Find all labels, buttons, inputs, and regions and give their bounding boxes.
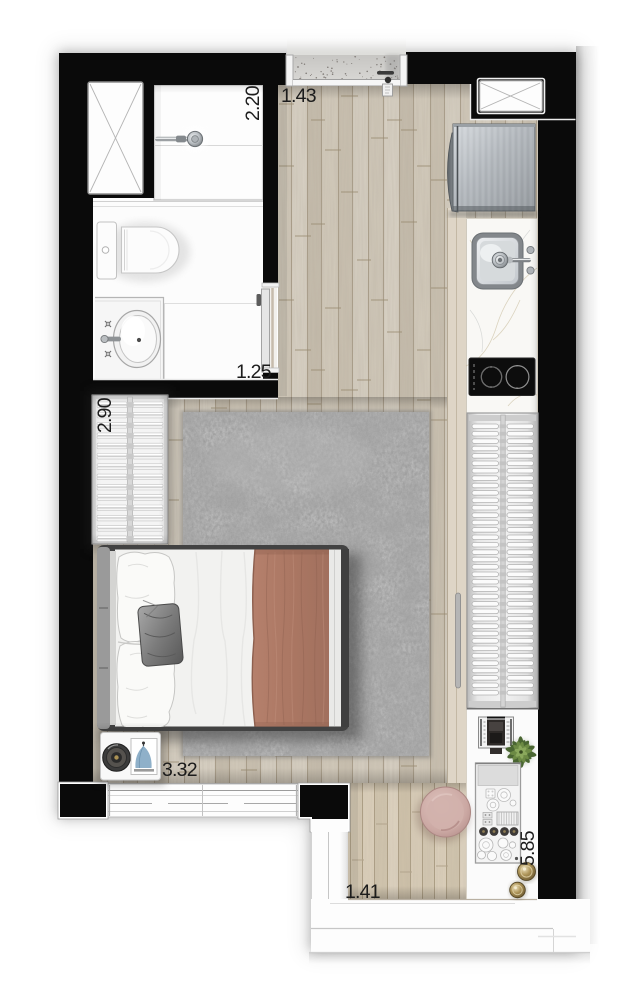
svg-text:1.41: 1.41	[345, 881, 380, 903]
svg-text:2.20: 2.20	[242, 85, 264, 121]
svg-text:2.90: 2.90	[94, 397, 116, 433]
svg-text:1.43: 1.43	[281, 85, 316, 107]
svg-text:5.85: 5.85	[517, 830, 539, 866]
svg-text:3.32: 3.32	[162, 759, 197, 781]
svg-text:1.25: 1.25	[236, 361, 272, 383]
